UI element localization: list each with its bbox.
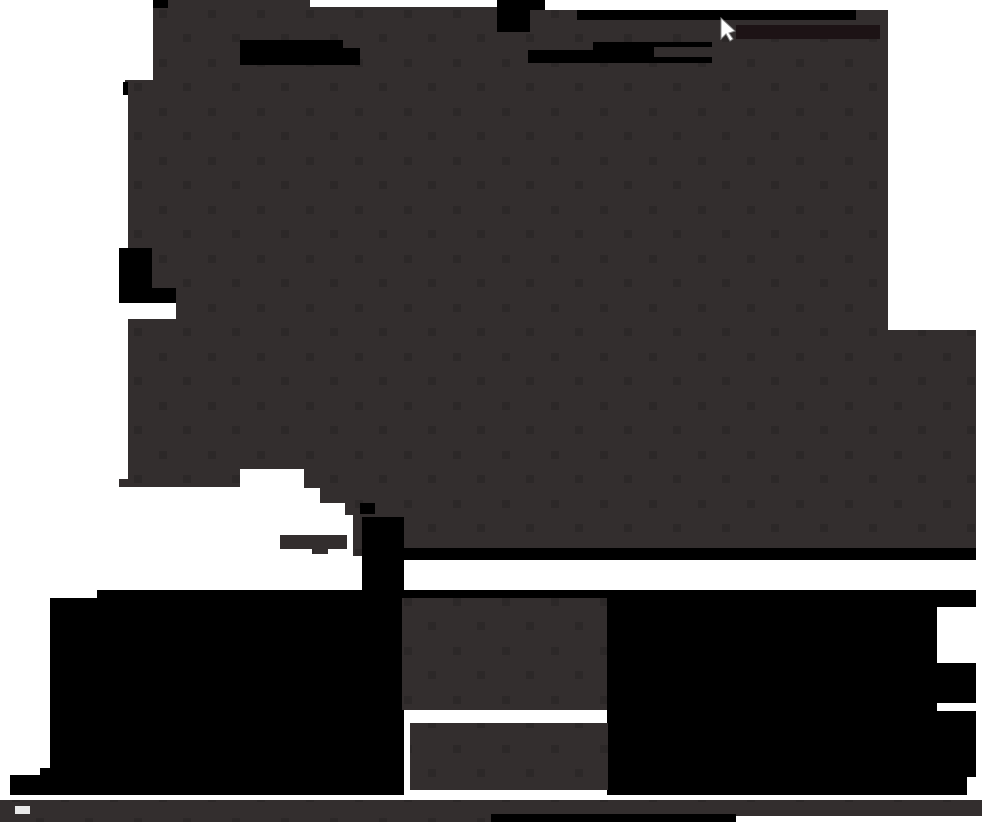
black-strip-top-left [153,0,168,8]
gray-block-center-bottom [410,723,608,790]
black-mass-right [607,598,976,795]
black-dot-mid [360,503,375,514]
gray-band-small [280,535,347,549]
black-notch-left-edge [123,82,128,95]
black-band-lower [97,590,976,598]
black-cluster-upper-left [240,40,360,65]
gray-block-center-top [402,598,607,710]
bottom-bar-left-extension [0,816,491,822]
black-column-mid [362,517,404,598]
black-mass-left [10,598,404,795]
black-band-mid [399,548,976,560]
gray-notch-in-black-bar [654,47,712,57]
bottom-bar [0,800,982,816]
near-black-rect [736,25,880,39]
bottom-bar-notch [15,806,30,814]
dark-scene-canvas [0,0,982,822]
black-wedge-bottom [491,814,736,822]
black-band-top-right [577,10,856,20]
gray-corner-small [312,548,328,554]
screen-capture [0,0,982,822]
